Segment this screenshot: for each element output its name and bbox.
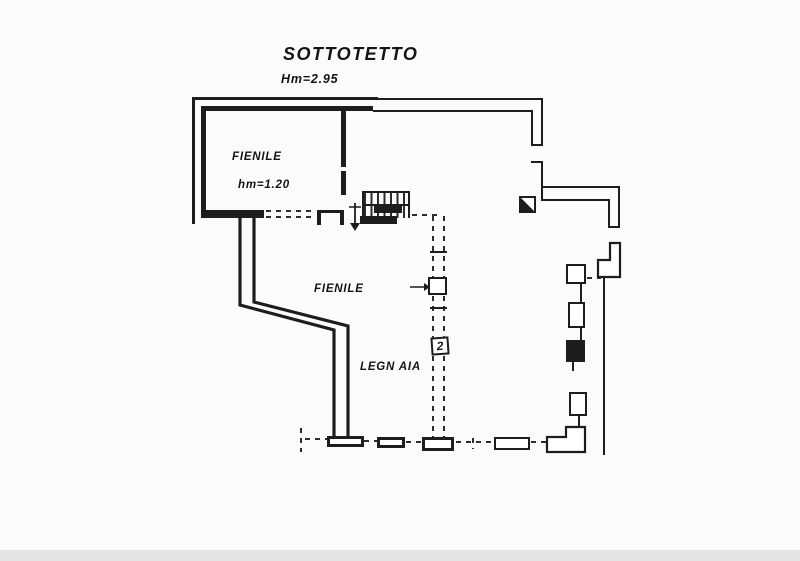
opening-direction-arrow bbox=[410, 283, 430, 291]
room-height-fienile-upper: hm=1.20 bbox=[238, 179, 290, 191]
stairs-down-arrow bbox=[349, 203, 361, 231]
room-label-fienile-main: FIENILE bbox=[314, 283, 364, 295]
wall-corner-bottom-right bbox=[547, 427, 585, 452]
scan-edge-band bbox=[0, 550, 800, 561]
plan-linework bbox=[0, 0, 800, 561]
wall-step-right bbox=[598, 243, 620, 277]
floor-plan-page: SOTTOTETTO Hm=2.95 2 bbox=[0, 0, 800, 561]
room-label-legnaia: LEGN AIA bbox=[360, 361, 421, 373]
room-label-fienile-upper: FIENILE bbox=[232, 151, 282, 163]
